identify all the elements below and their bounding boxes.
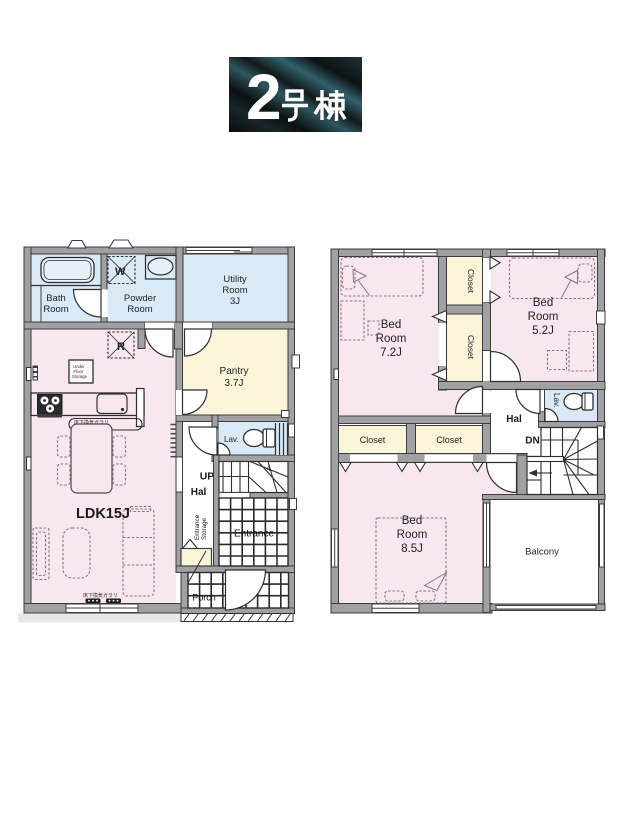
svg-text:Lav.: Lav. [224,435,239,444]
svg-text:Balcony: Balcony [525,547,559,558]
svg-text:床下換気ガラリ: 床下換気ガラリ [83,592,118,599]
svg-text:Closet: Closet [360,435,386,445]
svg-text:2: 2 [246,61,282,133]
svg-text:DN: DN [525,436,539,447]
svg-text:3J: 3J [230,296,240,307]
svg-text:Closet: Closet [466,335,476,360]
svg-text:Bed: Bed [402,515,422,527]
svg-text:Entrance: Entrance [194,514,201,540]
svg-text:Bed: Bed [533,297,553,309]
svg-text:Room: Room [43,304,68,315]
svg-text:5.2J: 5.2J [532,325,554,337]
svg-text:Porch: Porch [192,593,216,603]
svg-text:8.5J: 8.5J [401,543,423,555]
svg-text:7.2J: 7.2J [380,347,402,359]
svg-text:R: R [117,341,125,353]
svg-text:Bed: Bed [381,319,401,331]
svg-text:Room: Room [222,285,247,296]
svg-text:4: 4 [267,464,272,473]
svg-text:3.7J: 3.7J [225,378,244,389]
svg-text:Room: Room [397,529,428,541]
svg-text:Storage: Storage [201,517,208,540]
svg-text:Closet: Closet [436,435,462,445]
svg-text:Storage: Storage [72,374,88,379]
svg-text:Room: Room [127,304,152,315]
svg-text:Pantry: Pantry [220,366,249,377]
svg-text:Powder: Powder [124,293,156,304]
svg-text:Lav.: Lav. [552,393,561,408]
svg-text:UP: UP [200,471,215,483]
svg-text:Entrance: Entrance [234,529,274,540]
svg-text:Room: Room [376,333,407,345]
svg-text:Hal: Hal [191,487,207,498]
svg-text:Hal: Hal [506,414,522,425]
svg-text:Closet: Closet [466,269,476,294]
svg-text:LDK15J: LDK15J [76,506,130,522]
svg-text:Room: Room [528,311,559,323]
svg-text:Utility: Utility [223,274,246,285]
svg-text:W: W [115,266,126,278]
svg-text:Bath: Bath [46,293,66,304]
